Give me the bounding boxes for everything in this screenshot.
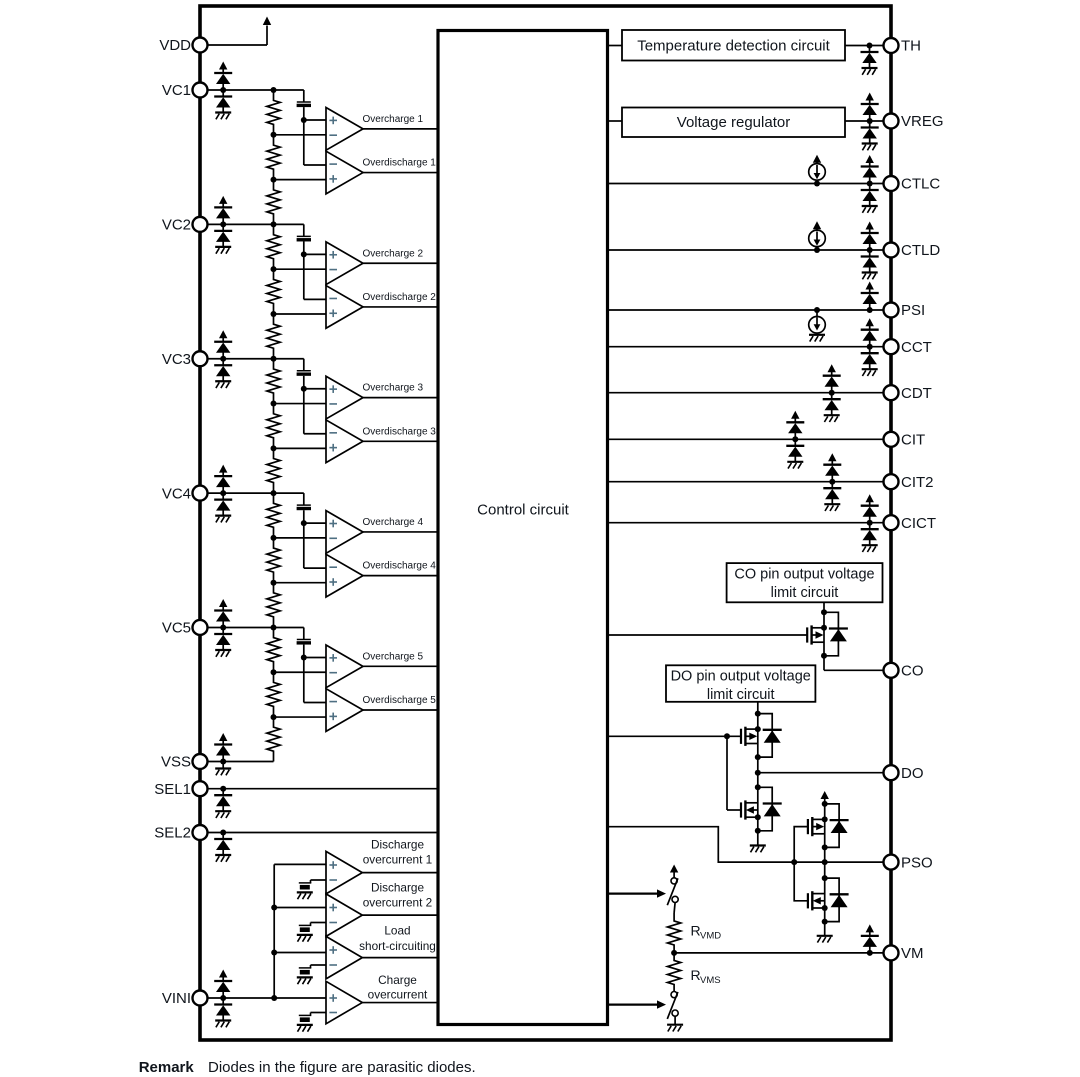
svg-text:CO: CO <box>901 663 924 680</box>
svg-text:VSS: VSS <box>161 754 191 771</box>
svg-text:Voltage regulator: Voltage regulator <box>677 114 790 131</box>
svg-text:Load: Load <box>384 923 410 937</box>
svg-text:overcurrent 1: overcurrent 1 <box>363 853 433 867</box>
svg-text:Overcharge 5: Overcharge 5 <box>363 651 424 662</box>
svg-text:VINI: VINI <box>162 990 191 1007</box>
svg-text:Remark: Remark <box>139 1059 195 1076</box>
svg-text:Overcharge 1: Overcharge 1 <box>363 114 424 125</box>
svg-text:limit circuit: limit circuit <box>771 585 839 601</box>
svg-text:Overdischarge 5: Overdischarge 5 <box>363 695 437 706</box>
svg-text:Control circuit: Control circuit <box>477 502 570 519</box>
svg-text:SEL2: SEL2 <box>154 825 191 842</box>
svg-text:PSO: PSO <box>901 854 933 871</box>
svg-text:VC2: VC2 <box>162 217 191 234</box>
svg-text:overcurrent: overcurrent <box>368 988 428 1002</box>
svg-text:CICT: CICT <box>901 515 936 532</box>
svg-text:VC3: VC3 <box>162 351 191 368</box>
svg-text:TH: TH <box>901 38 921 55</box>
svg-text:limit circuit: limit circuit <box>707 687 775 703</box>
svg-text:Overcharge 4: Overcharge 4 <box>363 517 424 528</box>
svg-text:VREG: VREG <box>901 113 944 130</box>
svg-text:DO: DO <box>901 765 924 782</box>
svg-text:Diodes in the figure are paras: Diodes in the figure are parasitic diode… <box>208 1059 476 1076</box>
svg-text:Overdischarge 2: Overdischarge 2 <box>363 292 437 303</box>
svg-text:Overdischarge 4: Overdischarge 4 <box>363 561 437 572</box>
svg-text:CIT: CIT <box>901 432 925 449</box>
svg-text:CDT: CDT <box>901 385 932 402</box>
svg-text:VC5: VC5 <box>162 620 191 637</box>
svg-text:Charge: Charge <box>378 973 417 987</box>
svg-text:VMS: VMS <box>700 975 721 986</box>
svg-text:VM: VM <box>901 945 924 962</box>
svg-text:VDD: VDD <box>159 37 191 54</box>
svg-text:CIT2: CIT2 <box>901 474 934 491</box>
svg-text:CCT: CCT <box>901 339 932 356</box>
svg-text:PSI: PSI <box>901 302 925 319</box>
svg-text:Discharge: Discharge <box>371 880 425 894</box>
svg-text:short-circuiting: short-circuiting <box>359 939 436 953</box>
svg-text:CTLC: CTLC <box>901 176 940 193</box>
svg-text:overcurrent 2: overcurrent 2 <box>363 895 433 909</box>
svg-text:Overcharge 2: Overcharge 2 <box>363 248 424 259</box>
svg-text:DO pin output voltage: DO pin output voltage <box>671 669 811 685</box>
svg-text:Overdischarge 1: Overdischarge 1 <box>363 158 437 169</box>
svg-text:VC1: VC1 <box>162 82 191 99</box>
svg-text:Discharge: Discharge <box>371 837 425 851</box>
svg-text:CTLD: CTLD <box>901 242 940 259</box>
svg-text:Temperature detection circuit: Temperature detection circuit <box>637 38 830 55</box>
svg-text:Overdischarge 3: Overdischarge 3 <box>363 426 437 437</box>
svg-text:CO pin output voltage: CO pin output voltage <box>734 566 874 582</box>
svg-text:VC4: VC4 <box>162 485 191 502</box>
svg-text:SEL1: SEL1 <box>154 781 191 798</box>
svg-text:VMD: VMD <box>700 930 721 941</box>
svg-text:Overcharge 3: Overcharge 3 <box>363 383 424 394</box>
